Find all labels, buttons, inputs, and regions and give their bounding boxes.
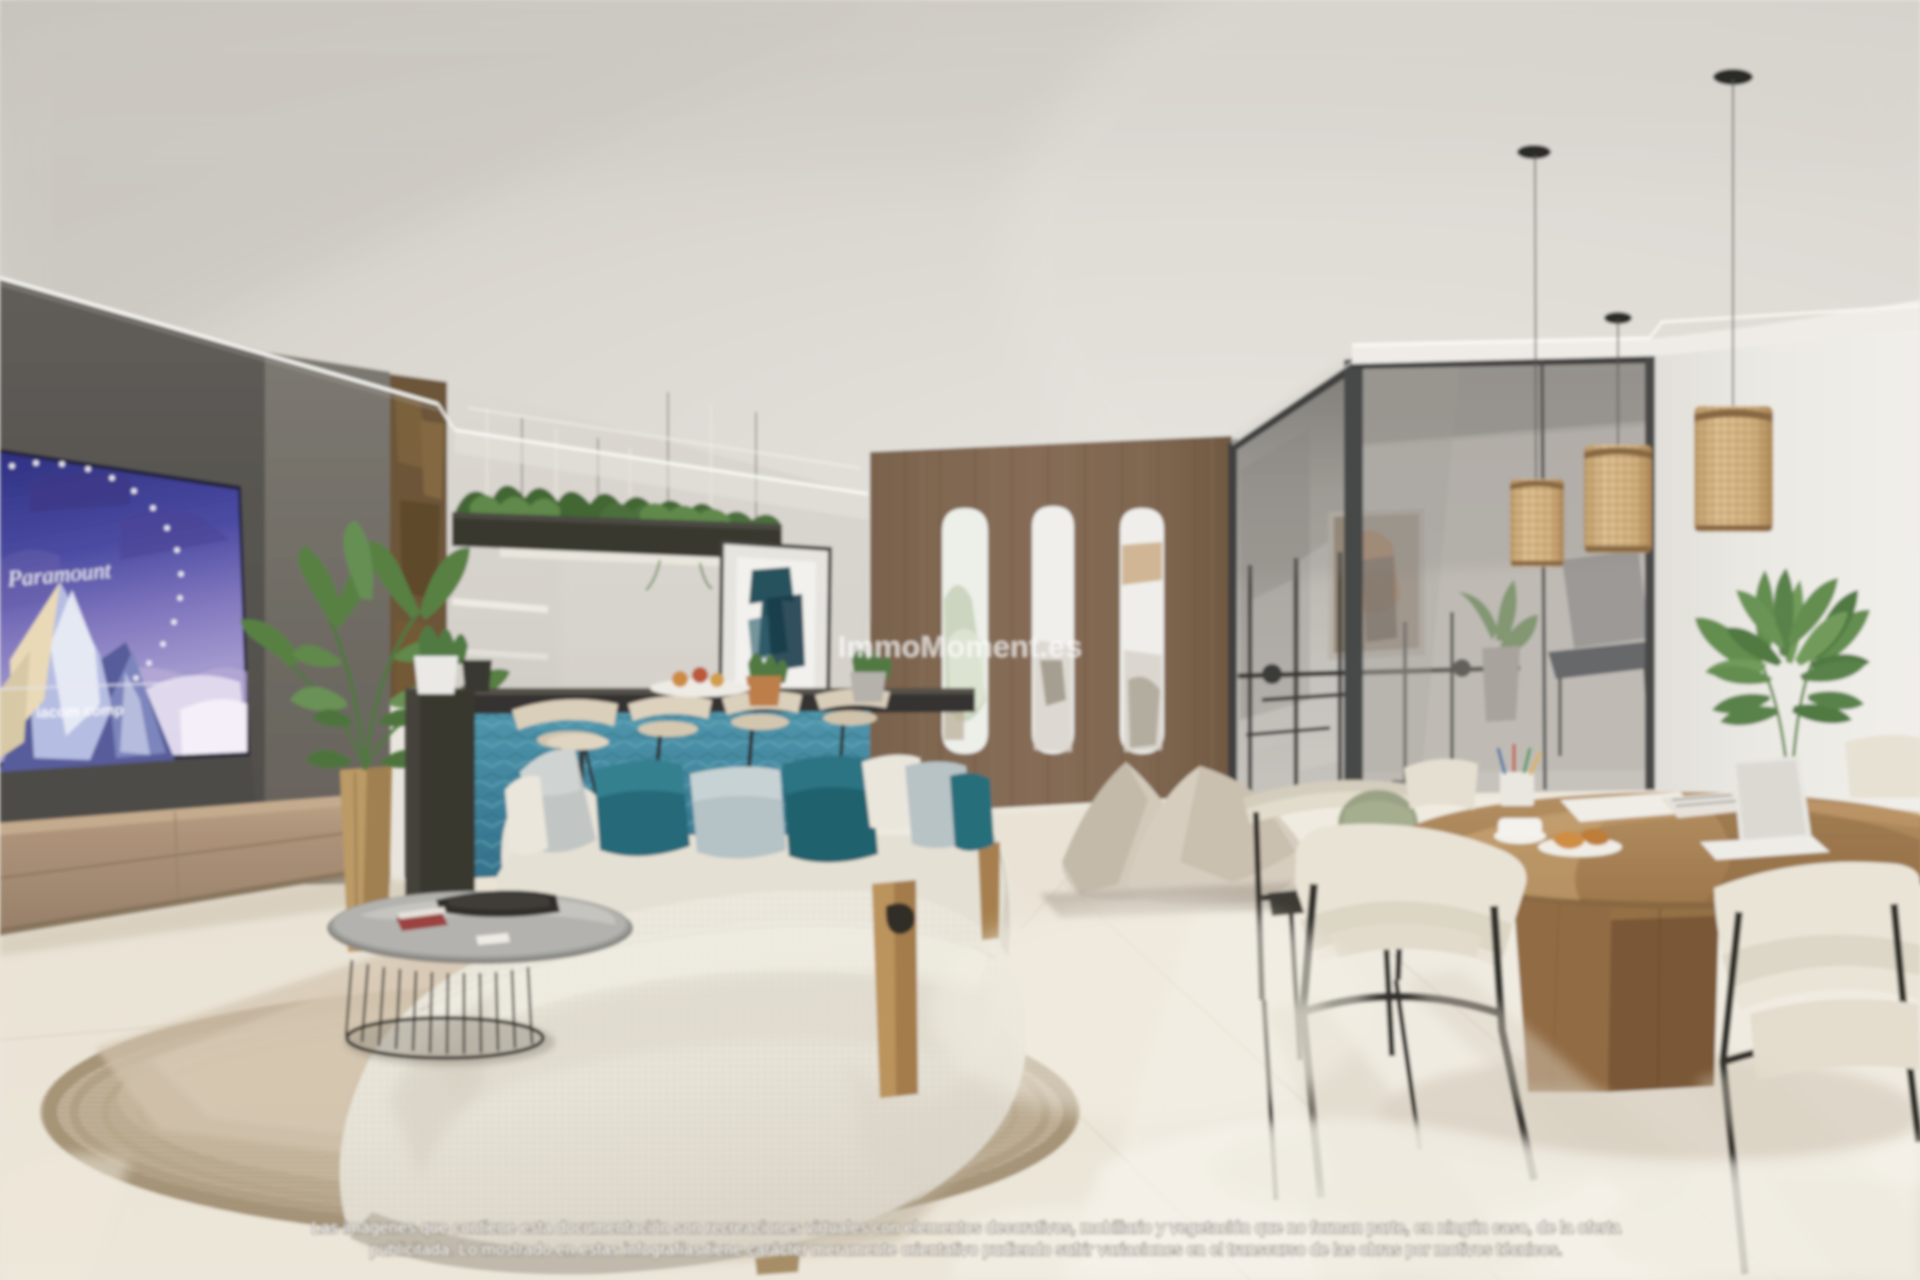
- svg-text:iacom comp: iacom comp: [36, 702, 124, 722]
- svg-text:Las imágenes que contiene esta: Las imágenes que contiene esta documenta…: [312, 1218, 1622, 1237]
- svg-text:ImmoMoment.es: ImmoMoment.es: [838, 629, 1083, 664]
- svg-text:publicitada. Lo mostrado en es: publicitada. Lo mostrado en estas infogr…: [370, 1240, 1563, 1259]
